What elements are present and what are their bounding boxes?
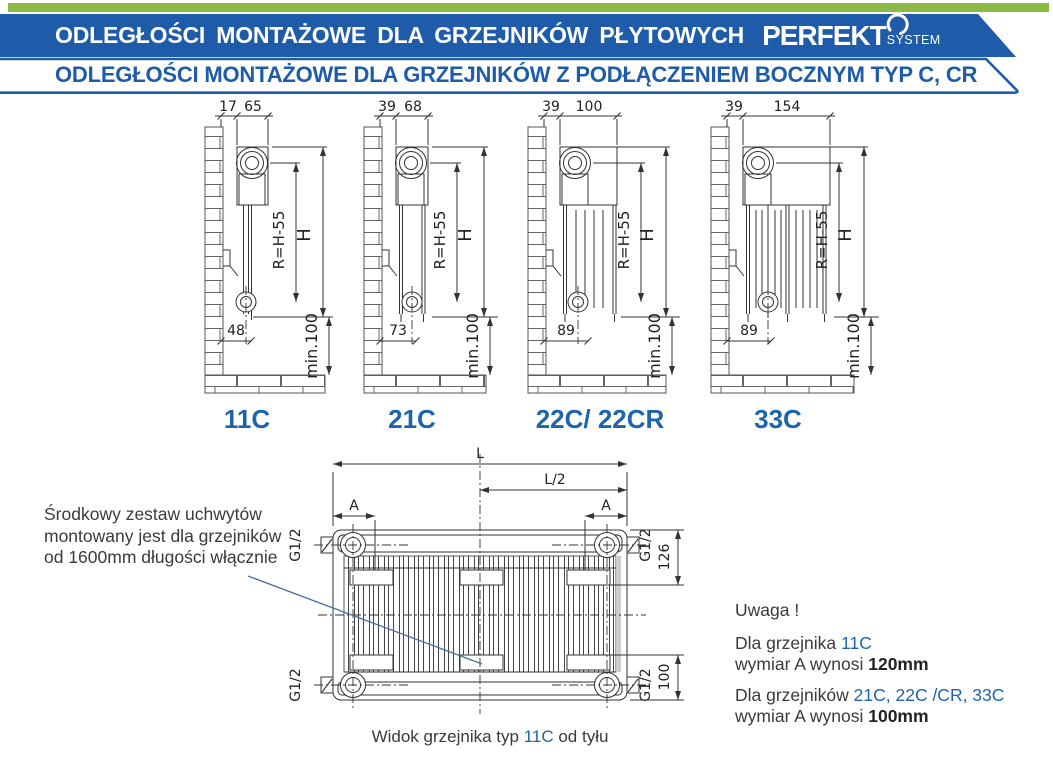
type-label-11c: 11C [224, 404, 270, 434]
dim-h: H [637, 228, 658, 242]
dim-100: 100 [657, 664, 673, 691]
dim-min: min.100 [302, 313, 321, 379]
note-pointer-line [240, 568, 490, 668]
dim-a-value-100: 100mm [868, 706, 928, 726]
dim-bottom: 89 [557, 323, 575, 339]
note-text: Dla grzejnika [735, 633, 841, 653]
note-line: wymiar A wynosi 120mm [735, 654, 1004, 676]
dim-g12-bottom-right: G1/2 [638, 668, 654, 701]
note-text: wymiar A wynosi [735, 654, 868, 674]
dim-depth: 65 [244, 100, 262, 115]
dim-g12-bottom-left: G1/2 [288, 668, 304, 701]
type-ref-21c-22c-33c: 21C, 22C /CR, 33C [854, 685, 1005, 705]
dim-bottom: 48 [227, 323, 245, 339]
dim-h: H [455, 228, 476, 242]
rear-view-caption: Widok grzejnika typ 11C od tyłu [290, 727, 690, 747]
type-label-22c-22cr: 22C/ 22CR [536, 404, 665, 434]
dim-A-right: A [601, 498, 611, 514]
dim-g12-top-right: G1/2 [638, 528, 654, 561]
dim-h: H [835, 228, 856, 242]
note-line: od 1600mm długości włącznie [44, 547, 281, 569]
dim-bottom: 89 [740, 323, 758, 339]
dim-wall-offset: 39 [725, 100, 743, 115]
note-line: Dla grzejników 21C, 22C /CR, 33C [735, 685, 1004, 707]
dim-min: min.100 [463, 313, 482, 379]
dim-wall-offset: 17 [219, 100, 237, 115]
note-center-bracket: Środkowy zestaw uchwytów montowany jest … [44, 504, 281, 569]
dim-depth: 68 [404, 100, 422, 115]
type-ref-11c: 11C [841, 633, 872, 653]
dimensions: 17 65 H R=H-55 min.100 48 [215, 100, 329, 379]
dim-depth: 154 [774, 100, 801, 115]
type-label-33c: 33C [754, 404, 802, 434]
diagram-33c: 39 154 H R=H-55 min.100 89 33C [699, 100, 911, 440]
note-text: wymiar A wynosi [735, 706, 868, 726]
note-text: Dla grzejników [735, 685, 854, 705]
note-line: wymiar A wynosi 100mm [735, 706, 1004, 728]
caption-text: Widok grzejnika typ [372, 727, 524, 746]
dimensions: 39 68 H R=H-55 min.100 73 [374, 100, 490, 379]
dim-r: R=H-55 [813, 211, 831, 270]
dim-h: H [294, 228, 315, 242]
note-line: montowany jest dla grzejników [44, 526, 281, 548]
dim-r: R=H-55 [431, 211, 449, 270]
dim-min: min.100 [645, 313, 664, 379]
dimensions: 39 100 H R=H-55 min.100 89 [538, 100, 672, 379]
dim-wall-offset: 39 [378, 100, 396, 115]
dim-min: min.100 [844, 313, 863, 379]
drawing-canvas: 17 65 H R=H-55 min.100 48 11C [0, 0, 1053, 769]
diagram-22c-22cr: 39 100 H R=H-55 min.100 89 22C/ 22CR [516, 100, 726, 440]
dim-a-value-120: 120mm [868, 654, 928, 674]
note-line: Środkowy zestaw uchwytów [44, 504, 281, 526]
dim-L: L [476, 446, 484, 462]
dim-g12-top-left: G1/2 [288, 528, 304, 561]
dim-depth: 100 [576, 100, 603, 115]
type-label-21c: 21C [388, 404, 436, 434]
note-line: Dla grzejnika 11C [735, 633, 1004, 655]
dim-bottom: 73 [389, 323, 407, 339]
dim-L-half: L/2 [544, 472, 565, 488]
dim-r: R=H-55 [270, 211, 288, 270]
caption-type-ref: 11C [524, 727, 554, 746]
caption-text: od tyłu [554, 727, 609, 746]
dim-126: 126 [657, 544, 673, 571]
note-uwaga: Uwaga ! Dla grzejnika 11C wymiar A wynos… [735, 600, 1004, 728]
dim-wall-offset: 39 [542, 100, 560, 115]
dim-r: R=H-55 [615, 211, 633, 270]
note-title: Uwaga ! [735, 600, 1004, 622]
page: ODLEGŁOŚCI MONTAŻOWE DLA GRZEJNIKÓW PŁYT… [0, 0, 1053, 769]
dim-A-left: A [349, 498, 359, 514]
